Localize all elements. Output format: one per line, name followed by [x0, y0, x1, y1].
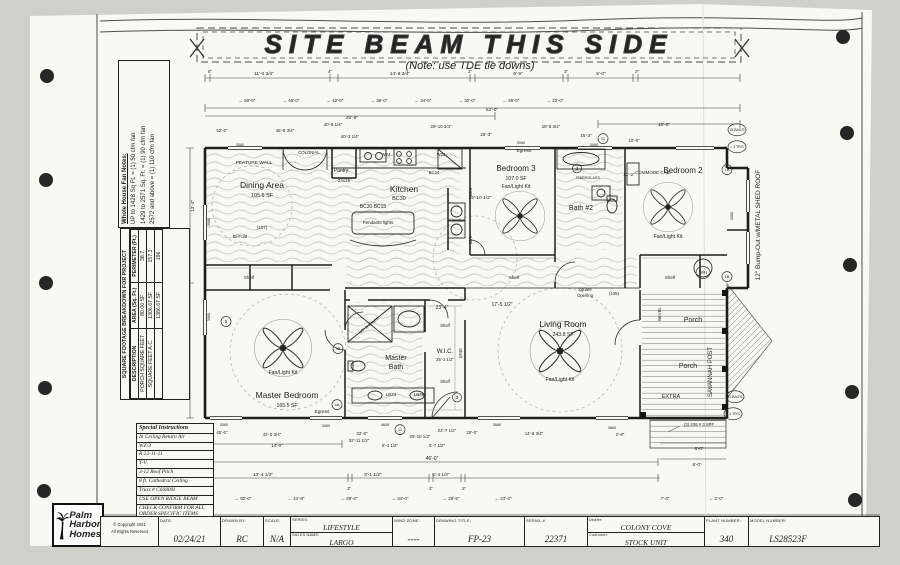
plan-label: = 1 TR'S — [726, 412, 740, 416]
plant-number-value: 340 — [705, 534, 748, 544]
plan-label: ← 50'-0" — [235, 496, 252, 501]
plan-label: Living Room — [539, 319, 586, 329]
empty-cell — [827, 517, 879, 546]
drawing-title-cell: DRAWING TITLE: FP-23 — [435, 517, 525, 546]
plan-label: 165.5 SF — [276, 403, 297, 409]
plan-label: ← 26'-0" — [503, 98, 520, 103]
plan-label: Square — [578, 287, 592, 292]
series-label: SERIES: — [292, 518, 308, 522]
model-number-label: MODEL NUMBER: — [750, 518, 786, 523]
plan-label: 3060 — [322, 424, 330, 428]
plan-label: 11'-2" — [623, 172, 635, 178]
col-perimeter: PERIMETER (Ft.) — [131, 230, 139, 283]
plan-label: 42'-0 3/4" — [263, 432, 282, 437]
plan-label: 32'-11 1/2" — [349, 438, 370, 443]
plan-label: Fan/Light Kit — [268, 370, 298, 376]
plan-label: Bath — [389, 364, 404, 371]
plan-label: BC30 — [392, 196, 406, 202]
copyright-cell: © Copyright 2021 All Rights Reserved — [101, 517, 159, 546]
date-label: DATE: — [160, 518, 172, 523]
plan-label: Fan/Light Kit — [545, 377, 575, 383]
serial-value: 22371 — [525, 534, 587, 544]
plan-label: 18'-8 3/4" — [542, 124, 561, 129]
fan-notes-title: Whole House Fan Notes: — [121, 64, 130, 224]
plan-label: 10'-0" — [658, 122, 671, 128]
plan-label: ← 34'-0" — [392, 496, 409, 501]
plan-label: Fan/Light Kit — [653, 234, 683, 240]
plan-label: 46'-8 3/4" — [276, 128, 295, 133]
plan-label: 25'-10 1/2" — [469, 195, 492, 201]
plan-label: Porch — [679, 363, 697, 370]
plan-label: 40'-9 1/4" — [324, 122, 343, 127]
special-instruction-item: In Ceiling Return Air — [137, 433, 213, 442]
plan-label: 11 BAG'S — [728, 395, 744, 399]
plan-label: Fan/Light Kit — [501, 184, 531, 190]
special-instruction-item: WZ-3 — [137, 442, 213, 451]
plan-label: Dining Area — [240, 180, 284, 190]
plan-label: W24 — [382, 152, 391, 157]
plan-label: 2'-8" — [616, 432, 625, 437]
plan-label: 7'-4" — [661, 496, 670, 501]
logo-line: Homes — [69, 530, 101, 539]
series-value: LIFESTYLE — [291, 523, 392, 532]
plan-label: Pendants lights — [363, 220, 395, 225]
serial-cell: SERIAL # 22371 — [525, 517, 588, 546]
plan-label: 13'-4" — [190, 200, 195, 212]
plan-label: 5'-0" — [596, 71, 606, 77]
cell — [155, 328, 163, 398]
plan-label: 107.0 SF — [505, 176, 526, 182]
scale-value: N/A — [264, 534, 290, 544]
plan-label: 25'-3" — [480, 132, 492, 137]
date-cell: DATE: 02/24/21 — [159, 517, 221, 546]
plan-label: BC30 BC15 — [360, 204, 387, 210]
site-beam-banner-title: SITE BEAM THIS SIDE — [265, 29, 674, 59]
plan-label: EXTRA — [662, 394, 681, 400]
cell: 157.3 — [147, 230, 155, 283]
plan-label: LB24 — [386, 392, 397, 397]
plan-label: 15 BAG'S — [729, 128, 745, 132]
scale-label: SCALE: — [265, 518, 280, 523]
scanned-floor-plan-sheet: { "banner": {"title": "SITE BEAM THIS SI… — [0, 0, 900, 565]
special-instruction-item: T-V — [137, 459, 213, 468]
plan-label: Shelf — [458, 348, 463, 358]
plan-label: 6" — [208, 69, 212, 74]
plan-label: Bath #2 — [569, 205, 593, 212]
plan-label: 3" — [468, 69, 472, 74]
plan-label: Master — [385, 355, 407, 362]
plan-label: 13'-4 1/2" — [253, 472, 274, 478]
sales-name-label: SALES NAME: — [292, 533, 320, 537]
plan-label: Shelf — [244, 275, 255, 280]
plan-label: ← 28'-8" — [443, 496, 460, 501]
plan-label: Opening — [577, 293, 594, 298]
plan-label: W/H — [699, 270, 707, 275]
special-instruction-item: 8 ft. Cathedral Ceiling — [137, 477, 213, 486]
cell: 1386.67 SF — [155, 282, 163, 328]
col-description: DESCRIPTION — [131, 328, 139, 398]
dealer-value: COLONY COVE — [588, 523, 704, 532]
serial-label: SERIAL # — [526, 518, 545, 523]
drawn-by-label: DRAWN BY: — [222, 518, 246, 523]
plan-label: 3060 — [220, 423, 228, 427]
special-instruction-item: Truss # C66800I — [137, 486, 213, 495]
plan-label: 25'-10 1/2" — [410, 434, 431, 439]
plan-label: 3660 — [493, 423, 501, 427]
plan-label: Egress — [517, 148, 533, 154]
cell: 38.7 — [139, 230, 147, 283]
plan-label: ← 22'-0" — [547, 98, 564, 103]
plan-label: 32'-0" — [356, 431, 368, 436]
plan-label: 3060 — [517, 141, 525, 145]
plan-label: W.I.C. — [437, 349, 454, 355]
plan-label: 23'-7 1/2" — [438, 428, 457, 433]
plan-label: Porch — [684, 317, 702, 324]
title-block: © Copyright 2021 All Rights Reserved DAT… — [100, 516, 880, 547]
special-instructions-box: Special Instructions In Ceiling Return A… — [136, 423, 214, 520]
cell: 196 — [155, 230, 163, 283]
dealer-customer-cell: Dealer: COLONY COVE Customer: STOCK UNIT — [588, 517, 705, 546]
plan-label: 26'-9" — [346, 115, 359, 121]
table-row: 1386.67 SF 196 — [155, 230, 163, 399]
plan-label: ← 44'-8" — [288, 496, 305, 501]
plant-number-label: PLANT NUMBER: — [706, 518, 741, 523]
plan-label: 4A — [335, 402, 340, 407]
plan-label: Bi-Fold — [233, 234, 248, 239]
plan-label: = 1 TR'S — [730, 145, 744, 149]
plan-label: 8'-1 1/2" — [364, 472, 382, 478]
cell: SQUARE FEET A.C. — [147, 328, 155, 398]
plan-label: W24 — [437, 152, 446, 157]
plan-label: Bedroom 3 — [496, 164, 536, 173]
plan-label: 9'-9" — [513, 71, 523, 77]
plan-label: 3060 — [207, 313, 211, 321]
plan-label: 3" — [462, 486, 466, 491]
table-row: SQUARE FEET A.C. 1306.67 SF 157.3 — [147, 230, 155, 399]
plan-label: ← 2'-0" — [709, 496, 724, 501]
plan-label: ← 42'-0" — [327, 98, 344, 103]
drawn-by-cell: DRAWN BY: RC — [221, 517, 264, 546]
plan-label: Kitchen — [390, 184, 419, 194]
plan-label: Shelf — [440, 379, 450, 384]
special-instructions-title: Special Instructions — [137, 424, 213, 433]
plan-label: FIBERGLASS — [576, 176, 600, 180]
plan-label: 6'-4 1/2" — [382, 443, 399, 448]
plan-label: 45'-0" — [216, 430, 228, 435]
plan-label: 11'-0 3/4" — [254, 71, 274, 77]
plan-label: 12" Bump-Out w/METAL SHED ROOF — [755, 170, 762, 281]
plan-label: BC24 — [429, 170, 440, 175]
special-instruction-item: USE OPEN RIDGE BEAM — [137, 495, 213, 504]
copyright-line: © Copyright 2021 — [101, 522, 158, 529]
plan-label: 15'-3" — [580, 133, 592, 138]
fan-notes-line: 1429 to 2571 Sq. Ft. = (1) 90 cfm fan — [140, 64, 149, 224]
wind-zone-cell: WIND ZONE: ---- — [393, 517, 435, 546]
wind-zone-value: ---- — [393, 534, 434, 544]
date-value: 02/24/21 — [159, 534, 220, 544]
plan-label: 24x26 — [338, 178, 351, 183]
plan-label: 4" — [328, 69, 332, 74]
plan-label: 29'-10 3/4" — [431, 124, 452, 129]
plan-label: 6'-0" — [693, 462, 702, 467]
special-instruction-item: R 22-11-11 — [137, 450, 213, 459]
plan-label: 3" — [635, 69, 639, 74]
plan-label: W30 — [468, 236, 473, 245]
plan-label: 3060 — [207, 218, 211, 226]
dealer-label: Dealer: — [589, 518, 603, 522]
plan-label: 5'-4 1/2" — [432, 472, 450, 478]
cell: 80.00 SF — [139, 282, 147, 328]
plan-label: 3" — [347, 486, 351, 491]
col-area: AREA (Sq. Ft.) — [131, 282, 139, 328]
fan-notes-box: Whole House Fan Notes: UP to 1428 Sq Ft.… — [118, 60, 170, 228]
table-row: PORCH SQUARE FEET 80.00 SF 38.7 — [139, 230, 147, 399]
plan-label: 3060 — [730, 212, 734, 220]
plan-label: Egress — [315, 409, 331, 415]
copyright-line: All Rights Reserved — [101, 529, 158, 536]
sales-name-value: LARGO — [291, 538, 392, 547]
plan-label: (105) — [609, 291, 619, 296]
customer-label: Customer: — [589, 533, 608, 537]
plan-label: 14'-8 3/4" — [525, 431, 544, 436]
drawing-title-label: DRAWING TITLE: — [436, 518, 471, 523]
plan-label: 4608 — [381, 423, 389, 427]
drawn-by-value: RC — [221, 534, 263, 544]
drawing-title-value: FP-23 — [435, 534, 524, 544]
plan-label: 20'-0" — [466, 430, 478, 435]
model-number-cell: MODEL NUMBER: LS28523F — [749, 517, 827, 546]
model-number-value: LS28523F — [749, 534, 827, 544]
plan-label: Shelf — [665, 275, 676, 280]
plan-label: 17'-5 1/2" — [491, 302, 512, 308]
plan-label: 105.6 SF — [251, 193, 274, 199]
plan-label: 3060 — [236, 143, 244, 147]
plan-label: 14'-8 3/4" — [390, 71, 411, 77]
plan-label: 46'-0" — [426, 456, 439, 462]
plan-label: 243.8 SF — [552, 332, 573, 338]
plan-label: 3660 — [608, 426, 616, 430]
plan-label: (107) — [257, 225, 268, 230]
scale-cell: SCALE: N/A — [264, 517, 291, 546]
plan-label: (3) 2X6 # 3 SPF — [684, 422, 714, 427]
plan-label: 23'-4" — [436, 305, 449, 311]
plan-label: 3" — [564, 69, 568, 74]
plan-label: ← 38'-0" — [371, 98, 388, 103]
square-footage-title: SQUARE FOOTAGE BREAKDOWN FOR PROJECT — [121, 229, 130, 399]
plan-label: COLONIAL — [298, 150, 320, 155]
plant-number-cell: PLANT NUMBER: 340 — [705, 517, 749, 546]
cell: 1306.67 SF — [147, 282, 155, 328]
fan-notes-line: 2572 and above = (1) 110 cfm fan — [149, 64, 158, 224]
plan-label: Bedroom 2 — [663, 166, 703, 175]
palm-tree-icon — [55, 510, 69, 540]
plan-label: ← 23'-4" — [495, 496, 512, 501]
plan-label: 3060 — [590, 143, 598, 147]
plan-label: LB36 — [414, 392, 425, 397]
series-sales-cell: SERIES: LIFESTYLE SALES NAME: LARGO — [291, 517, 393, 546]
plan-label: 14'-0" — [271, 443, 283, 448]
special-instruction-item: 3-12 Roof Pitch — [137, 468, 213, 477]
plan-label: Pantry — [334, 168, 349, 174]
plan-label: Shelf — [440, 323, 450, 328]
plan-label: Master Bedroom — [256, 390, 319, 400]
plan-label: BEVEL — [657, 307, 662, 321]
plan-label: FEATURE WALL — [236, 160, 273, 166]
plan-label: SAVANNAH POST — [708, 347, 714, 397]
cell: PORCH SQUARE FEET — [139, 328, 147, 398]
plan-label: 5'-7 1/2" — [429, 443, 446, 448]
plan-label: 10'-0" — [628, 138, 640, 143]
plan-label: 3" — [429, 486, 433, 491]
plan-label: 1B — [725, 274, 730, 279]
plan-label: 40'-3 1/4" — [341, 134, 360, 139]
plan-label: 6'-0" — [695, 446, 704, 451]
plan-label: ← 30'-0" — [459, 98, 476, 103]
square-footage-table: SQUARE FOOTAGE BREAKDOWN FOR PROJECT DES… — [120, 228, 190, 400]
plan-label: 1A — [725, 167, 730, 172]
wind-zone-label: WIND ZONE: — [394, 518, 420, 523]
plan-label: 52'-0" — [486, 107, 499, 113]
plan-label: ← 39'-4" — [341, 496, 358, 501]
plan-label: ← 34'-0" — [415, 98, 432, 103]
palm-harbor-logo: Palm Harbor Homes — [52, 503, 104, 547]
fan-notes-line: UP to 1428 Sq Ft. = (1) 50 cfm fan — [130, 64, 139, 224]
customer-value: STOCK UNIT — [588, 538, 704, 547]
plan-label: 25'-1 1/2" — [436, 357, 454, 362]
plan-label: 52'-0" — [216, 128, 228, 133]
plan-label: Shelf — [509, 275, 520, 280]
plan-label: 4B — [336, 346, 341, 351]
plan-label: ← 46'-0" — [283, 98, 300, 103]
plan-label: ← 50'-0" — [239, 98, 256, 103]
